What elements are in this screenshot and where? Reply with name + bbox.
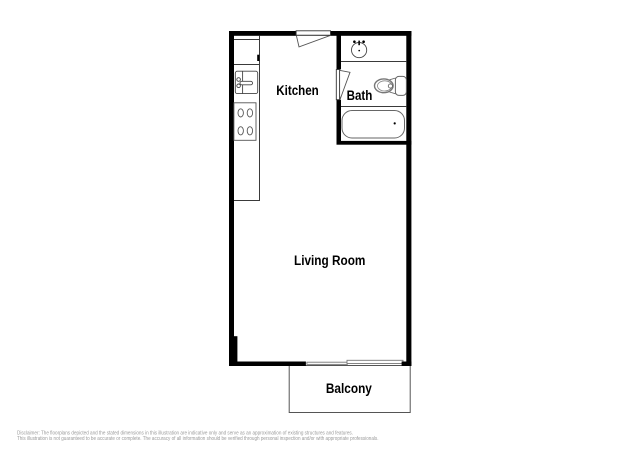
svg-text:Balcony: Balcony <box>326 381 372 396</box>
svg-text:Living Room: Living Room <box>294 253 365 268</box>
svg-text:Kitchen: Kitchen <box>276 83 319 98</box>
svg-text:Bath: Bath <box>347 88 373 103</box>
svg-text:This illustration is not guara: This illustration is not guaranteed to b… <box>17 436 379 442</box>
